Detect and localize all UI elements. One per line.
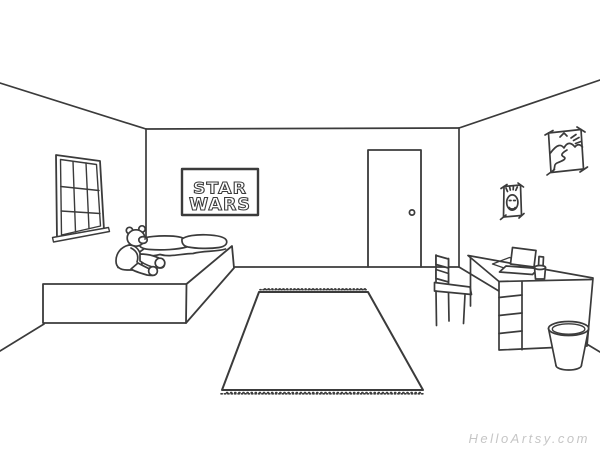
chair-back-slat-2	[436, 270, 449, 283]
ceiling-edge-left	[0, 83, 146, 129]
landscape-picture	[545, 127, 588, 175]
bear-snout	[139, 237, 147, 244]
rug	[221, 289, 424, 394]
star-wars-poster: STAR WARS	[182, 169, 258, 215]
portrait-picture	[501, 183, 525, 220]
laptop-base	[500, 266, 539, 275]
rug-outline	[222, 292, 423, 390]
pillow-right	[182, 235, 227, 249]
chair-leg-left	[436, 291, 437, 326]
floor-edge-left	[0, 324, 44, 351]
chair	[435, 255, 472, 326]
chair-seat	[435, 283, 472, 295]
laptop	[500, 248, 539, 275]
coloring-page-bedroom: STAR WARS	[0, 0, 600, 450]
chair-leg-middle	[449, 293, 450, 322]
door	[368, 150, 421, 267]
bear-nose	[144, 238, 146, 240]
ceiling-edge-back	[146, 128, 459, 129]
door-panel	[368, 150, 421, 267]
bear-foot-upper	[155, 258, 165, 268]
cup-rim	[535, 266, 546, 270]
bed	[43, 235, 234, 323]
chair-leg-right	[464, 295, 466, 324]
window	[53, 155, 110, 242]
watermark: HelloArtsy.com	[469, 431, 590, 446]
bear-foot-lower	[149, 267, 158, 276]
poster-text-line2: WARS	[189, 195, 251, 214]
chair-back-slat-1	[436, 256, 449, 269]
laptop-screen	[511, 248, 537, 268]
ceiling-edge-right	[459, 80, 600, 128]
trash-can	[549, 322, 589, 371]
scene-drawing: STAR WARS	[0, 0, 600, 450]
pencil-cup	[535, 257, 546, 280]
